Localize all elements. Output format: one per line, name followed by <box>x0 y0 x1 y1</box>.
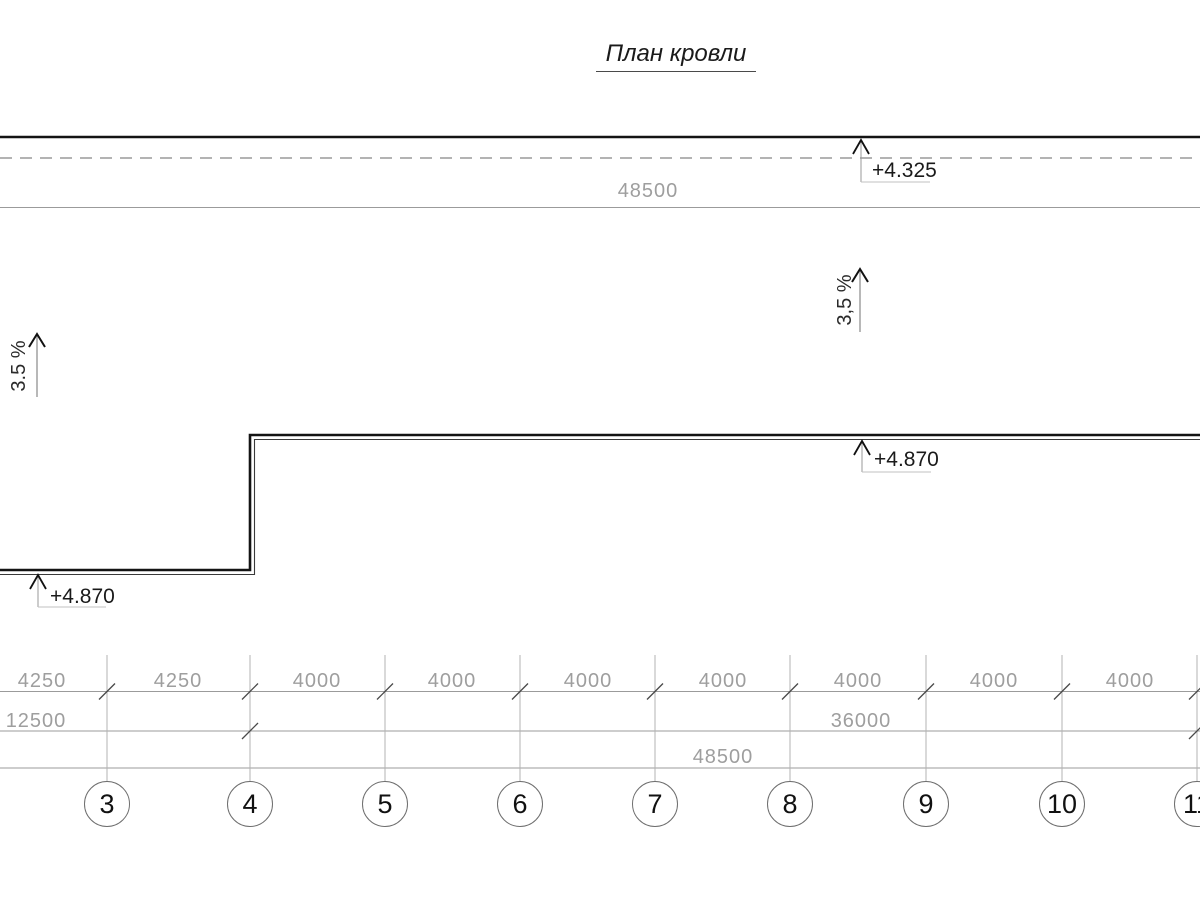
dimension-label: 48500 <box>618 181 679 201</box>
grid-bubble-label: 3 <box>99 789 114 820</box>
grid-bubble-label: 4 <box>242 789 257 820</box>
dimension-label: 4000 <box>1106 671 1155 691</box>
grid-bubble-label: 10 <box>1047 789 1077 820</box>
dimension-label: 4250 <box>154 671 203 691</box>
grid-bubble: 6 <box>497 781 543 827</box>
roof-edge-outer <box>0 435 1200 570</box>
grid-bubble: 9 <box>903 781 949 827</box>
dimension-label: 4000 <box>428 671 477 691</box>
grid-bubble: 3 <box>84 781 130 827</box>
grid-bubble-label: 7 <box>647 789 662 820</box>
roof-edge-inner <box>0 440 1200 575</box>
dimension-label: 4250 <box>18 671 67 691</box>
grid-bubble: 8 <box>767 781 813 827</box>
grid-bubble: 5 <box>362 781 408 827</box>
grid-bubble-label: 11 <box>1183 789 1200 820</box>
elevation-label-right: +4.870 <box>874 449 939 470</box>
grid-bubble-label: 6 <box>512 789 527 820</box>
dimension-label: 4000 <box>293 671 342 691</box>
slope-label-left: 3.5 % <box>9 326 29 406</box>
page-title: План кровли <box>596 40 756 72</box>
elevation-label-top: +4.325 <box>872 160 937 181</box>
elevation-label-left: +4.870 <box>50 586 115 607</box>
roof-plan-canvas: План кровли +4.325 +4.870 +4.870 3.5 % 3… <box>0 0 1200 900</box>
dimension-label: 4000 <box>699 671 748 691</box>
grid-bubble: 7 <box>632 781 678 827</box>
dimension-label: 36000 <box>831 711 892 731</box>
grid-bubble: 10 <box>1039 781 1085 827</box>
dimension-label: 4000 <box>564 671 613 691</box>
dimension-label: 12500 <box>6 711 67 731</box>
grid-bubble: 4 <box>227 781 273 827</box>
grid-bubble-label: 8 <box>782 789 797 820</box>
dimension-label: 48500 <box>693 747 754 767</box>
roof-plan-drawing <box>0 0 1200 900</box>
slope-label-right: 3,5 % <box>835 255 855 345</box>
grid-bubble-label: 5 <box>377 789 392 820</box>
dimension-label: 4000 <box>970 671 1019 691</box>
dimension-label: 4000 <box>834 671 883 691</box>
grid-bubble-label: 9 <box>918 789 933 820</box>
